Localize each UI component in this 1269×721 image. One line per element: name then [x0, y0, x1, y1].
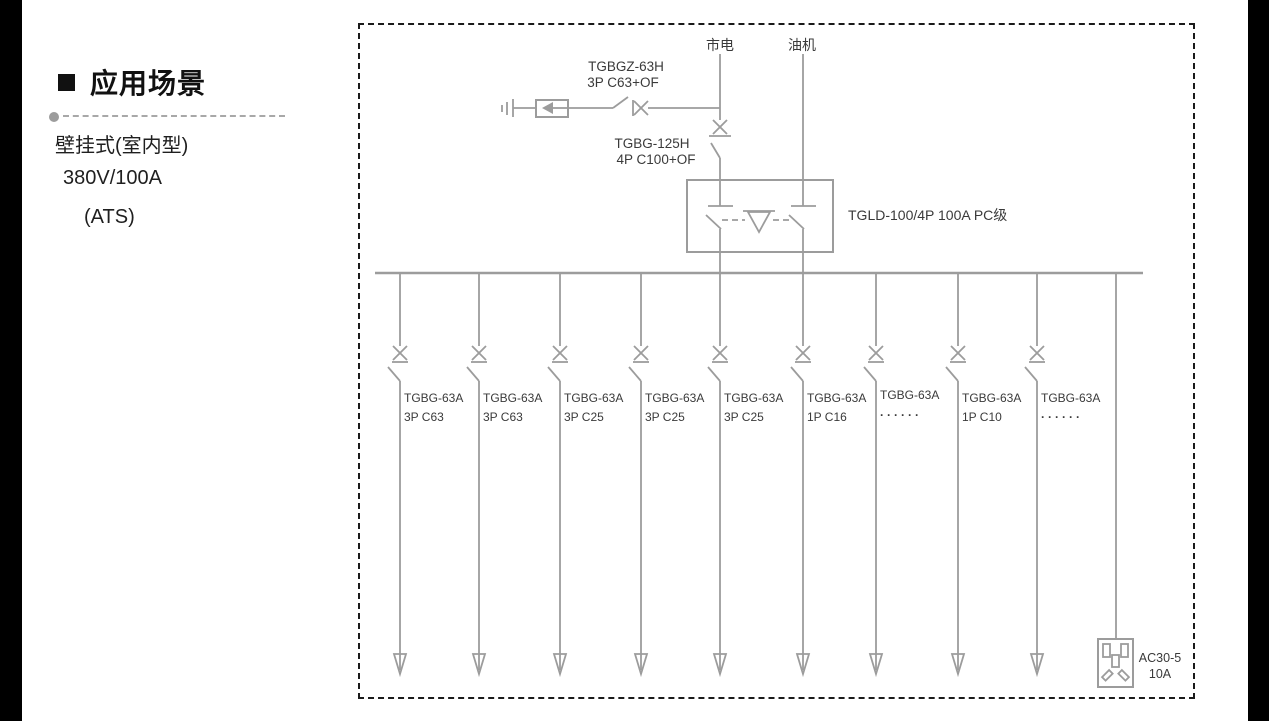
feeder-branch: TGBG-63A ······ — [1025, 273, 1100, 674]
branch-model-label: TGBG-63A — [564, 391, 623, 405]
breaker-x-icon — [472, 346, 486, 360]
ats-model-label: TGLD-100/4P 100A PC级 — [848, 207, 1007, 223]
breaker-x-icon — [393, 346, 407, 360]
section-title: 应用场景 — [90, 62, 206, 102]
breaker-x-icon — [553, 346, 567, 360]
branch-model-label: TGBG-63A — [962, 391, 1021, 405]
spd-breaker-spec-label: 3P C63+OF — [587, 75, 658, 90]
branch-model-label: TGBG-63A — [483, 391, 542, 405]
breaker-x-icon — [713, 346, 727, 360]
branch-model-label: TGBG-63A — [880, 388, 939, 402]
rating-text: 380V/100A — [63, 167, 162, 190]
socket-rating-label: 10A — [1149, 667, 1172, 681]
breaker-x-icon — [951, 346, 965, 360]
main-breaker-symbol — [709, 120, 731, 158]
feeder-branch: TGBG-63A 1P C16 — [791, 273, 866, 674]
branch-spec-label: 3P C25 — [724, 410, 764, 424]
branch-spec-label: ······ — [880, 408, 922, 422]
spd-breaker-model-label: TGBGZ-63H — [588, 59, 664, 74]
ats-text: (ATS) — [84, 206, 135, 229]
feeder-branch: TGBG-63A 3P C25 — [548, 273, 623, 674]
branch-model-label: TGBG-63A — [645, 391, 704, 405]
socket-icon — [1098, 639, 1133, 687]
page: 应用场景 壁挂式(室内型) 380V/100A (ATS) 市电 油机 TGBG… — [0, 0, 1269, 721]
single-line-diagram: 市电 油机 TGBG-125H 4P C100+OF — [359, 24, 1194, 698]
generator-source-label: 油机 — [788, 37, 816, 53]
socket-model-label: AC30-5 — [1139, 651, 1181, 665]
breaker-x-icon — [869, 346, 883, 360]
breaker-x-icon — [796, 346, 810, 360]
feeder-branch: TGBG-63A 3P C25 — [629, 273, 704, 674]
feeder-branch: TGBG-63A ······ — [864, 273, 939, 674]
main-breaker-spec-label: 4P C100+OF — [617, 152, 696, 167]
ats-switch-symbol — [687, 180, 833, 273]
right-black-bar — [1248, 0, 1269, 721]
socket-branch: AC30-5 10A — [1098, 273, 1181, 687]
left-black-bar — [0, 0, 22, 721]
breaker-x-icon — [634, 346, 648, 360]
branch-spec-label: 1P C16 — [807, 410, 847, 424]
section-bullet-icon — [58, 74, 75, 91]
branch-spec-label: ······ — [1041, 410, 1083, 424]
breaker-x-icon — [1030, 346, 1044, 360]
branch-spec-label: 3P C25 — [564, 410, 604, 424]
section-divider — [49, 111, 285, 123]
branch-model-label: TGBG-63A — [807, 391, 866, 405]
mains-feeder-line — [709, 54, 731, 180]
spd-breaker-symbol — [613, 97, 648, 116]
branch-spec-label: 1P C10 — [962, 410, 1002, 424]
branch-model-label: TGBG-63A — [1041, 391, 1100, 405]
branch-model-label: TGBG-63A — [724, 391, 783, 405]
branch-model-label: TGBG-63A — [404, 391, 463, 405]
branch-spec-label: 3P C63 — [404, 410, 444, 424]
mains-source-label: 市电 — [706, 37, 734, 53]
mount-type-text: 壁挂式(室内型) — [55, 129, 188, 158]
feeder-branch: TGBG-63A 1P C10 — [946, 273, 1021, 674]
surge-arrester-icon — [536, 100, 568, 117]
divider-dashed-line — [63, 115, 285, 117]
main-breaker-model-label: TGBG-125H — [614, 136, 689, 151]
spd-branch — [502, 97, 720, 117]
section-heading: 应用场景 — [58, 62, 206, 102]
branch-spec-label: 3P C63 — [483, 410, 523, 424]
feeder-branch: TGBG-63A 3P C25 — [708, 273, 783, 674]
divider-dot-icon — [49, 112, 59, 122]
branch-spec-label: 3P C25 — [645, 410, 685, 424]
feeder-branch: TGBG-63A 3P C63 — [467, 273, 542, 674]
feeder-branch: TGBG-63A 3P C63 — [388, 273, 463, 674]
ground-icon — [502, 99, 513, 117]
